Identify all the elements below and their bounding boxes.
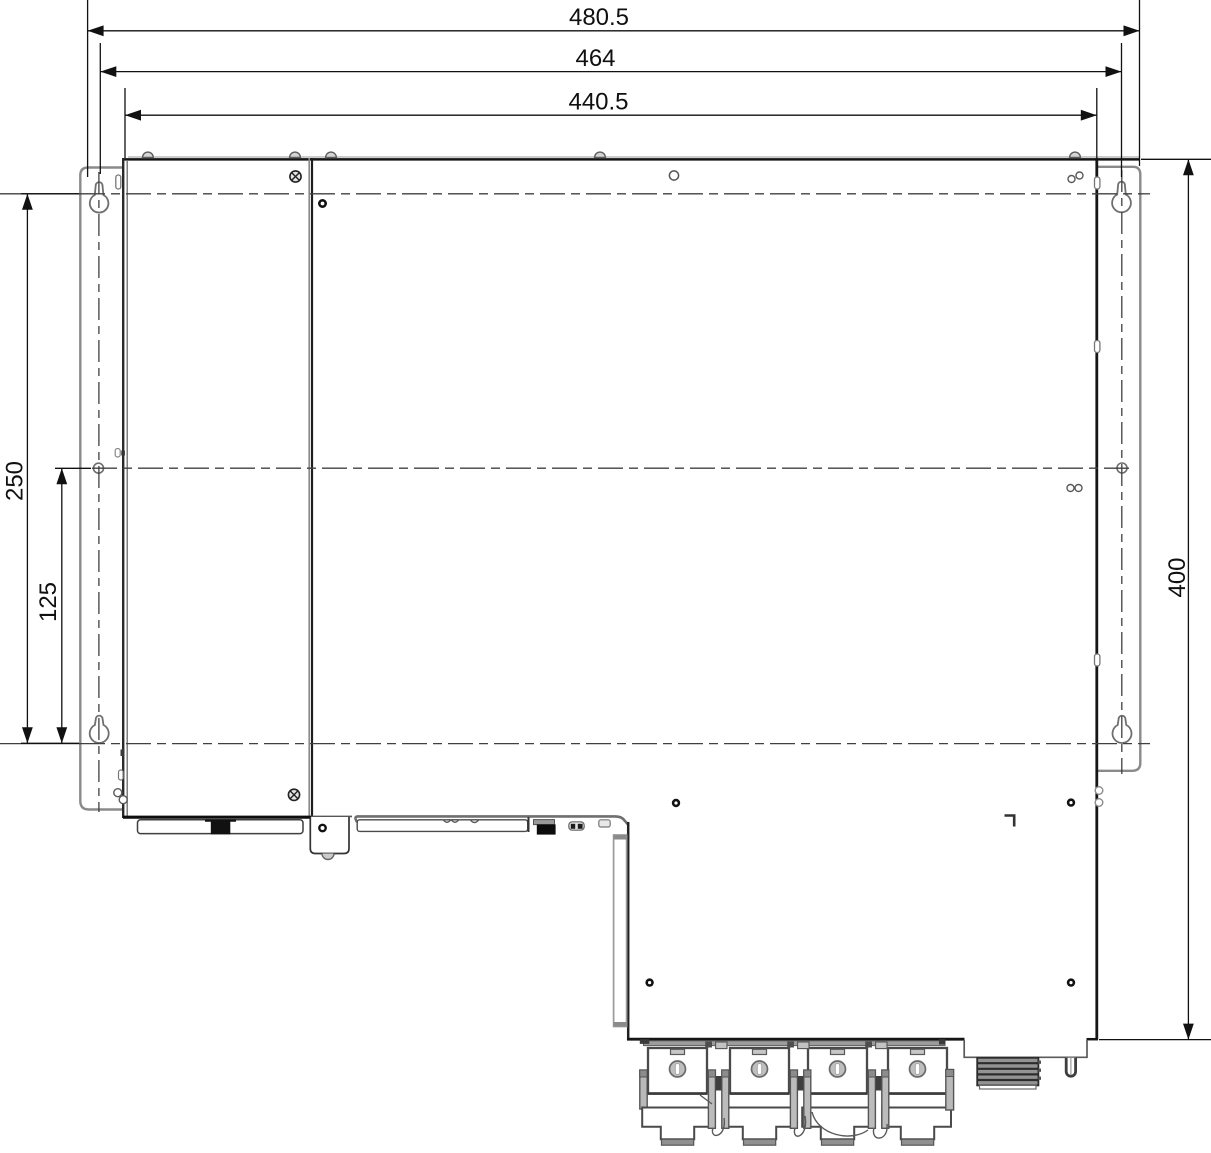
svg-text:464: 464 (575, 45, 615, 72)
svg-text:440.5: 440.5 (568, 89, 628, 116)
svg-text:250: 250 (2, 461, 29, 501)
svg-text:400: 400 (1164, 557, 1191, 597)
svg-text:480.5: 480.5 (569, 4, 629, 31)
svg-text:125: 125 (35, 582, 62, 622)
